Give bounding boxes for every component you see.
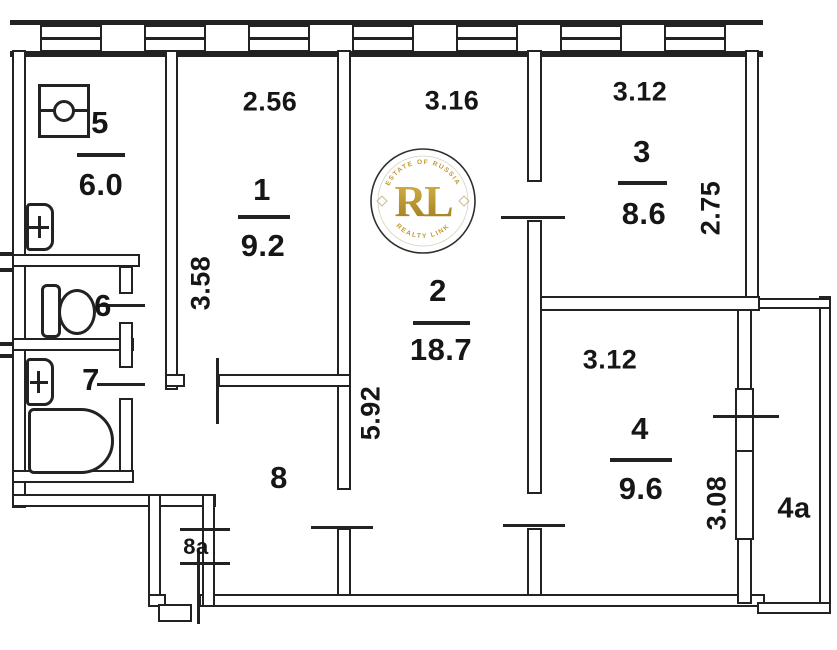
- dimension-label: 3.08: [702, 476, 733, 531]
- toilet-icon: [58, 289, 96, 335]
- room-1-number: 1: [253, 172, 271, 208]
- wall: [737, 536, 752, 604]
- wall: [218, 374, 351, 387]
- room-6-number: 6: [94, 288, 112, 324]
- balcony-wall: [757, 298, 831, 309]
- sink-icon: [30, 381, 48, 384]
- window-icon: [560, 25, 622, 52]
- wall-stub: [0, 342, 12, 346]
- room-7-number: 7: [82, 362, 100, 398]
- window-icon: [664, 25, 726, 52]
- wall: [119, 398, 133, 472]
- sink-icon: [29, 226, 49, 229]
- wall: [745, 50, 759, 310]
- fraction-bar: [77, 153, 125, 157]
- dimension-label: 3.12: [583, 345, 638, 376]
- wall: [148, 494, 161, 607]
- wall: [337, 50, 351, 490]
- entry-threshold: [158, 604, 192, 622]
- wall: [337, 528, 351, 596]
- wall: [527, 220, 542, 494]
- wall: [199, 594, 765, 607]
- dimension-label: 2.56: [243, 87, 298, 118]
- room-4-number: 4: [631, 411, 649, 447]
- window-icon: [144, 25, 206, 52]
- room-5-number: 5: [91, 105, 109, 141]
- room-8a-number: 8a: [183, 534, 208, 560]
- dimension-label: 3.12: [613, 77, 668, 108]
- room-2-area: 18.7: [410, 332, 472, 368]
- wall: [119, 322, 133, 368]
- door-mark: [180, 528, 230, 531]
- bathtub-icon: [28, 408, 114, 474]
- balcony-wall: [757, 602, 831, 614]
- room-1-area: 9.2: [241, 228, 286, 264]
- window-icon: [456, 25, 518, 52]
- room-5-area: 6.0: [79, 167, 124, 203]
- wall-stub: [0, 354, 12, 358]
- balcony-wall: [819, 296, 831, 614]
- fraction-bar: [610, 458, 672, 462]
- wall: [12, 50, 26, 508]
- wall: [527, 528, 542, 596]
- fraction-bar: [413, 321, 470, 325]
- floor-plan: 2.56 1 9.2 3.58 3.16 2 18.7 5.92 3.12 3 …: [0, 0, 837, 650]
- wall: [165, 50, 178, 390]
- dimension-label: 5.92: [356, 386, 387, 441]
- wall: [540, 296, 760, 311]
- door-mark: [311, 526, 373, 529]
- balcony-window-icon: [735, 450, 754, 540]
- wall: [12, 338, 134, 351]
- wall: [119, 266, 133, 294]
- window-icon: [248, 25, 310, 52]
- room-3-number: 3: [633, 134, 651, 170]
- wall: [12, 494, 216, 507]
- room-4a-number: 4a: [777, 493, 810, 526]
- window-icon: [40, 25, 102, 52]
- fraction-bar: [618, 181, 667, 185]
- watermark-logo: ESTATE OF RUSSIA REALTY LINK RL: [368, 146, 478, 256]
- dimension-label: 2.75: [696, 181, 727, 236]
- room-4-area: 9.6: [619, 471, 664, 507]
- room-2-number: 2: [429, 273, 447, 309]
- wall: [527, 50, 542, 182]
- room-8-number: 8: [270, 460, 288, 496]
- dimension-label: 3.58: [186, 256, 217, 311]
- door-mark: [180, 562, 230, 565]
- wall: [165, 374, 185, 387]
- fraction-bar: [238, 215, 290, 219]
- balcony-window-icon: [735, 388, 754, 452]
- wall: [737, 308, 752, 390]
- door-mark: [501, 216, 565, 219]
- dimension-label: 3.16: [425, 86, 480, 117]
- door-mark: [713, 415, 779, 418]
- window-icon: [352, 25, 414, 52]
- door-mark: [503, 524, 565, 527]
- wall-stub: [0, 268, 12, 272]
- watermark-initials: RL: [394, 177, 452, 226]
- door-mark: [97, 383, 145, 386]
- door-mark: [216, 358, 219, 424]
- room-3-area: 8.6: [622, 196, 667, 232]
- wall-stub: [0, 252, 12, 256]
- kitchen-stove-icon: [53, 100, 75, 122]
